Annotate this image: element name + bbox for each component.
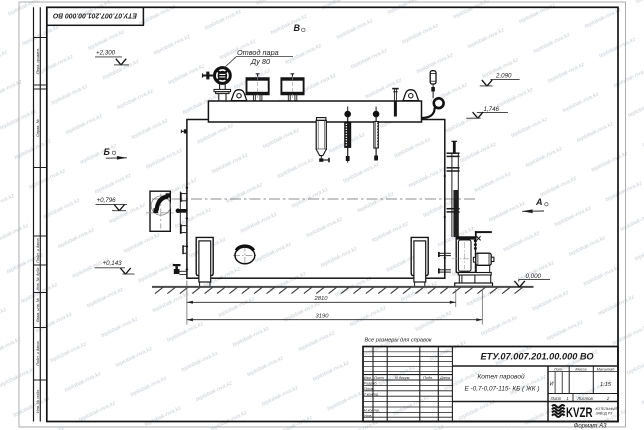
svg-text:+2,300: +2,300 bbox=[96, 50, 116, 57]
svg-text:Масштаб: Масштаб bbox=[597, 368, 616, 372]
svg-text:Масса: Масса bbox=[575, 368, 586, 372]
svg-text:3190: 3190 bbox=[316, 313, 330, 319]
svg-text:1: 1 bbox=[566, 396, 568, 401]
svg-text:Н.контр.: Н.контр. bbox=[364, 409, 380, 413]
svg-text:Т.контр.: Т.контр. bbox=[364, 392, 379, 396]
svg-text:ЕТУ.07.007.201.00.000 ВО: ЕТУ.07.007.201.00.000 ВО bbox=[481, 352, 595, 363]
svg-text:2810: 2810 bbox=[314, 296, 329, 302]
svg-text:Листов: Листов bbox=[576, 396, 593, 401]
svg-text:1,746: 1,746 bbox=[484, 106, 500, 113]
svg-text:Все размеры для справок: Все размеры для справок bbox=[365, 338, 432, 344]
svg-text:1:15: 1:15 bbox=[600, 382, 612, 388]
svg-text:Подп. и дата: Подп. и дата bbox=[35, 340, 40, 365]
svg-text:Дата: Дата bbox=[439, 376, 450, 380]
svg-text:Перв. примен.: Перв. примен. bbox=[35, 48, 40, 74]
svg-text:N докум.: N докум. bbox=[395, 376, 410, 380]
svg-text:Справ. №: Справ. № bbox=[35, 118, 40, 136]
svg-text:ЗАВОД РЗ: ЗАВОД РЗ bbox=[596, 412, 614, 416]
svg-text:Изм.: Изм. bbox=[364, 376, 372, 380]
svg-text:Лит.: Лит. bbox=[553, 368, 563, 372]
svg-text:И: И bbox=[550, 381, 554, 387]
svg-text:Б: Б bbox=[104, 147, 111, 157]
svg-text:Инв. № подл.: Инв. № подл. bbox=[35, 389, 40, 413]
svg-text:Ду 80: Ду 80 bbox=[250, 57, 270, 66]
svg-text:+0,796: +0,796 bbox=[97, 197, 117, 204]
svg-text:Формат А3: Формат А3 bbox=[574, 424, 607, 430]
svg-text:ЕТУ.07.007.201.00.000 ВО: ЕТУ.07.007.201.00.000 ВО bbox=[53, 12, 137, 21]
svg-text:КОТЕЛЬНЫЙ: КОТЕЛЬНЫЙ bbox=[596, 407, 618, 411]
svg-text:2,090: 2,090 bbox=[495, 73, 512, 80]
svg-text:А: А bbox=[535, 197, 543, 207]
svg-text:Лист: Лист bbox=[550, 396, 562, 401]
svg-text:Отвод пара: Отвод пара bbox=[237, 48, 279, 57]
svg-text:Взам. инв. №: Взам. инв. № bbox=[35, 297, 40, 322]
svg-text:Котел паровой: Котел паровой bbox=[477, 372, 525, 380]
svg-text:KVZR: KVZR bbox=[566, 405, 593, 420]
svg-text:Пров.: Пров. bbox=[364, 387, 374, 391]
svg-text:Утв.: Утв. bbox=[364, 414, 373, 418]
svg-text:Лист: Лист bbox=[373, 376, 384, 380]
svg-text:Подп.: Подп. bbox=[423, 376, 433, 380]
svg-text:+0,143: +0,143 bbox=[103, 260, 123, 267]
svg-text:В: В bbox=[294, 23, 301, 33]
svg-text:Инв. № дубл.: Инв. № дубл. bbox=[35, 267, 40, 291]
svg-text:Е -0,7-0,07-115- КБ ( ЖК ): Е -0,7-0,07-115- КБ ( ЖК ) bbox=[465, 385, 540, 392]
svg-text:Подп. и дата: Подп. и дата bbox=[35, 237, 40, 262]
svg-text:Разраб.: Разраб. bbox=[364, 382, 378, 386]
svg-text:0,000: 0,000 bbox=[526, 273, 542, 280]
